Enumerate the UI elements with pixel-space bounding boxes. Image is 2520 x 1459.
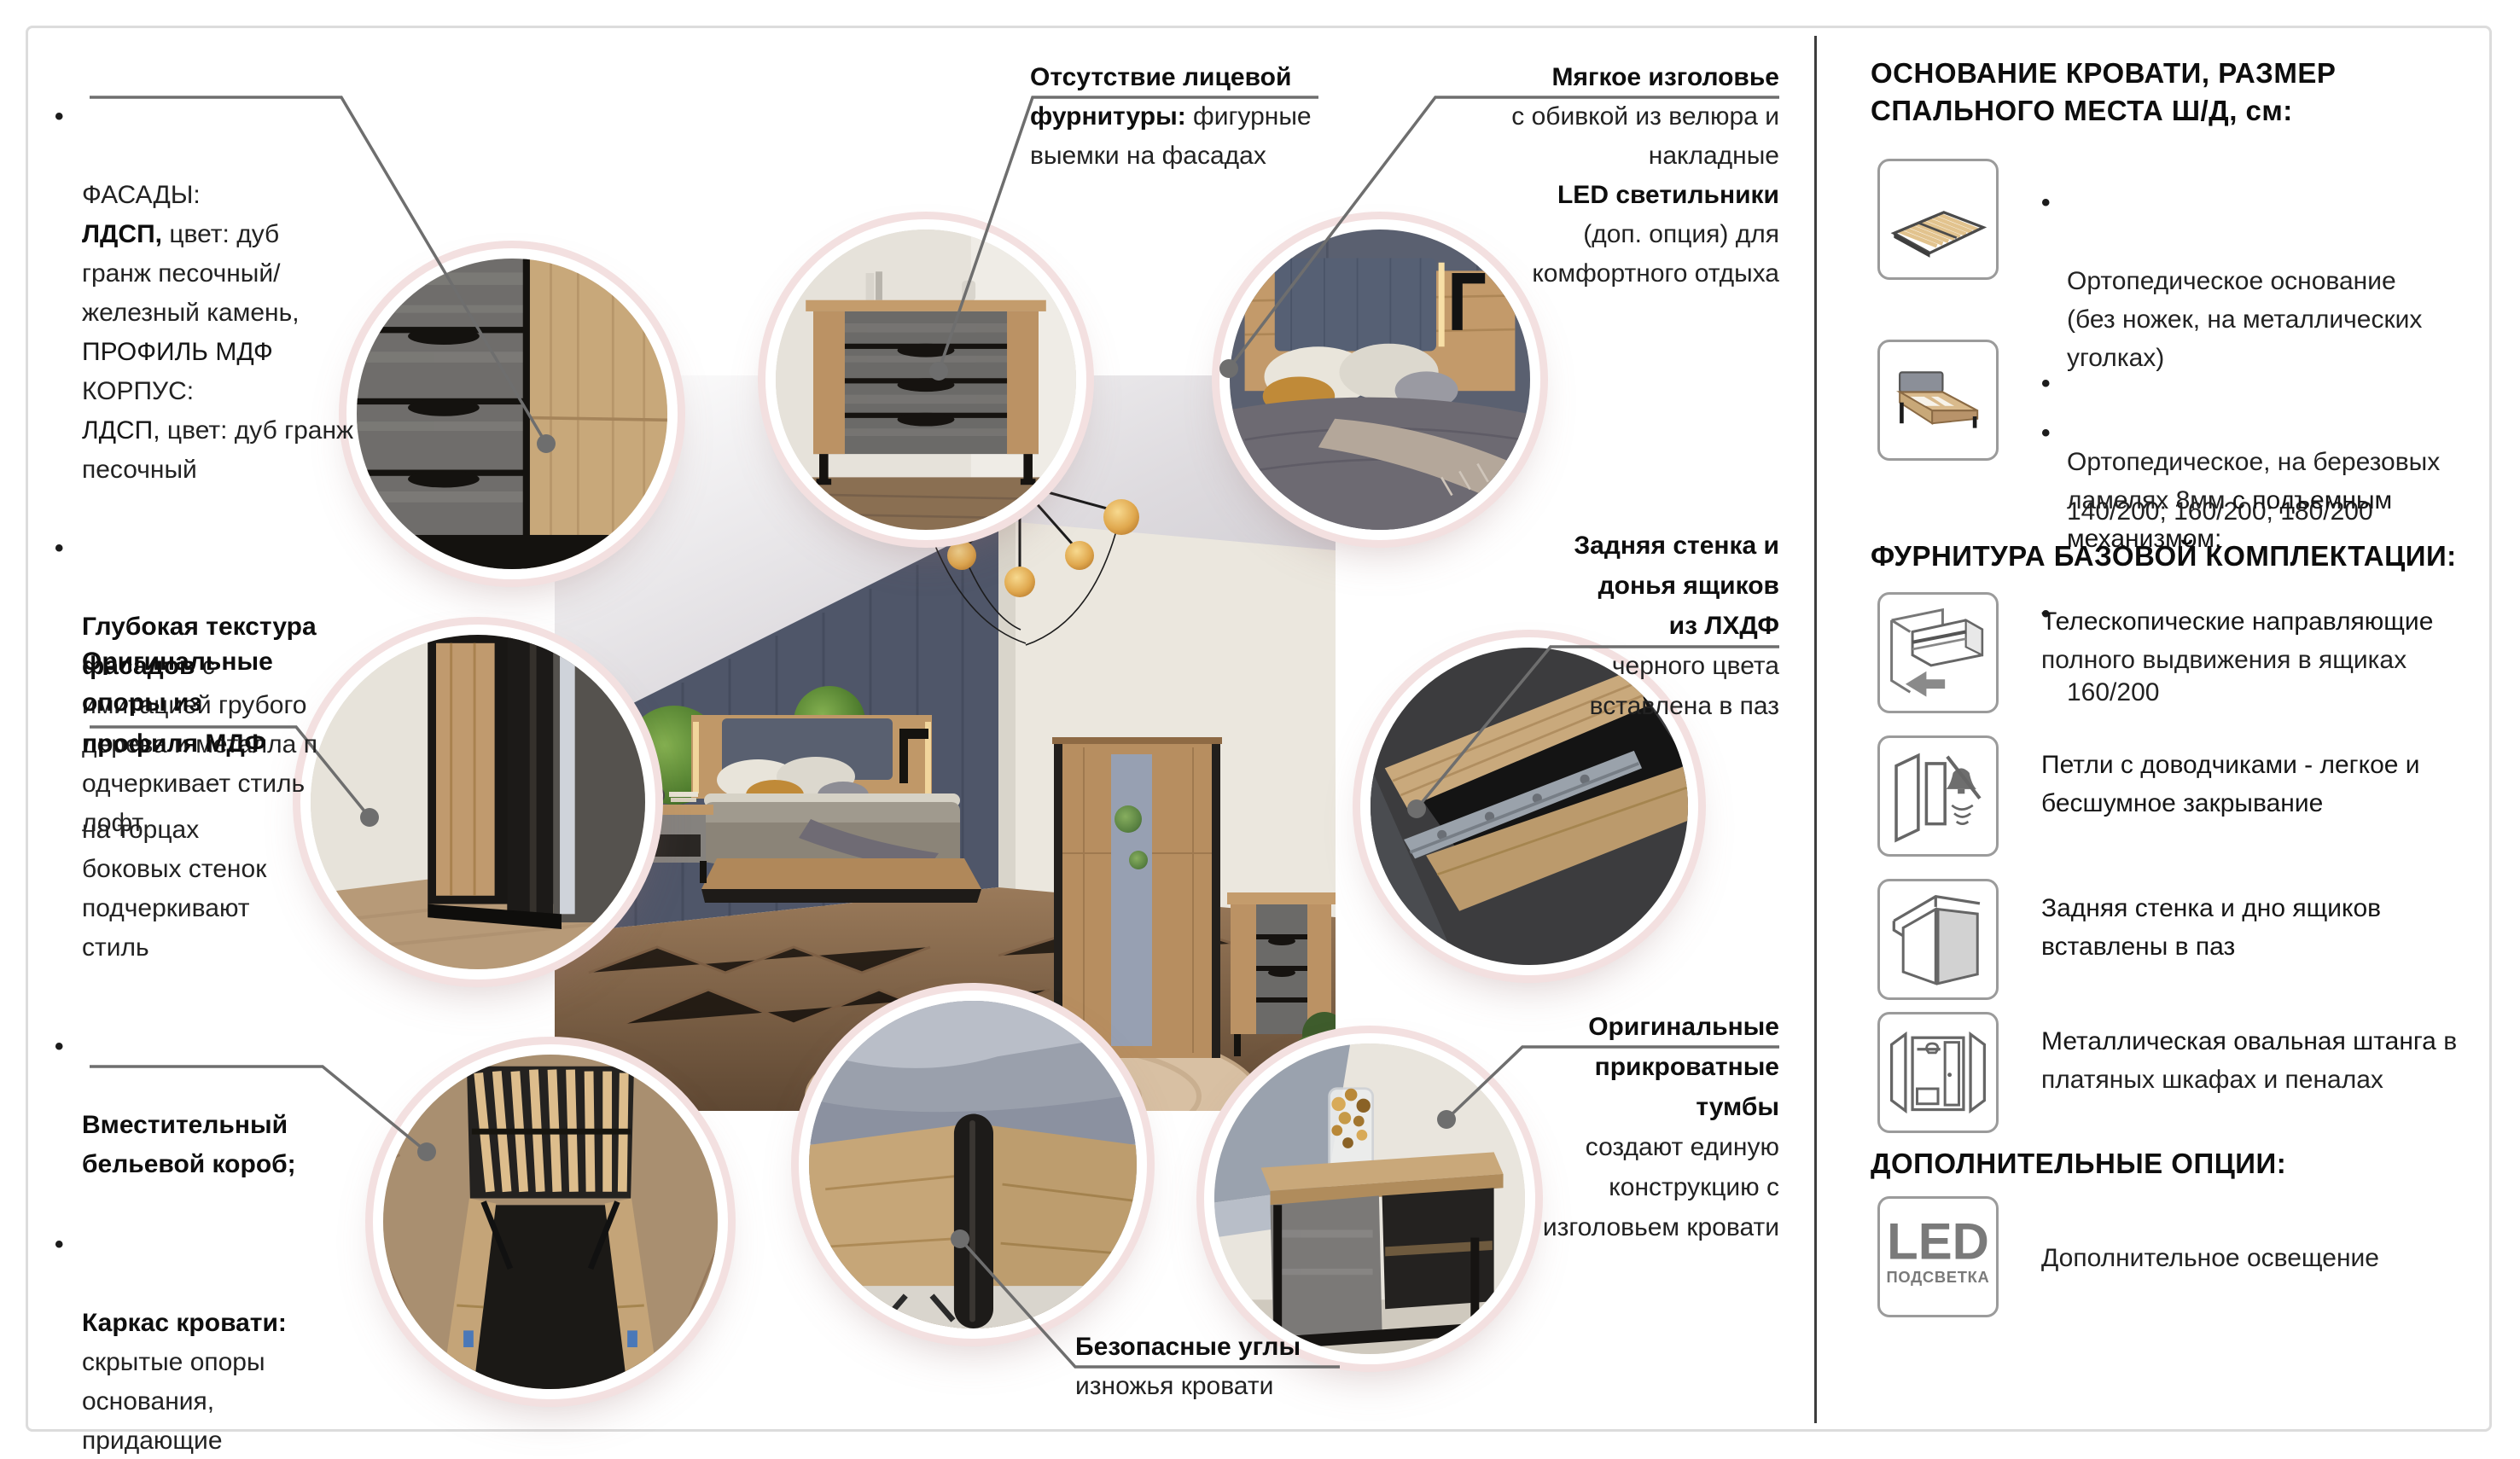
annotation-facades-item1: • ФАСАДЫ: ЛДСП, цвет: дуб гранж песочный…: [53, 97, 373, 490]
sidebar-heading-base: ОСНОВАНИЕ КРОВАТИ, РАЗМЕР СПАЛЬНОГО МЕСТ…: [1871, 55, 2468, 130]
callout-photo-storage-box: [383, 1055, 718, 1389]
sidebar-hw-row1-text: Телескопические направляющие полного выд…: [2041, 602, 2494, 679]
sidebar-hw-row2-text: Петли с доводчиками - легкое и бесшумное…: [2041, 746, 2494, 823]
annotation-box-item1: • Вместительный бельевой короб;: [53, 1027, 373, 1184]
sidebar-base-row2-line2: 160/200: [2067, 678, 2159, 706]
callout-photo-dresser-no-handles: [776, 230, 1076, 530]
callout-photo-nightstand: [1214, 1043, 1525, 1354]
led-backlight-icon: LED ПОДСВЕТКА: [1877, 1196, 1999, 1317]
annotation-box-item2: • Каркас кровати: скрытые опоры основани…: [53, 1225, 373, 1459]
annotation-nightstands: Оригинальные прикроватные тумбы создают …: [1489, 1007, 1779, 1247]
callout-photo-safe-corner: [809, 1001, 1137, 1328]
annotation-safe-corners: Безопасные углы изножья кровати: [1075, 1328, 1357, 1406]
annotation-box-text2: Каркас кровати: скрытые опоры основания,…: [82, 1309, 287, 1459]
annotation-supports-body: на торцах боковых стенок подчеркивают ст…: [82, 811, 389, 968]
annotation-storage-box: • Вместительный бельевой короб; • Каркас…: [53, 988, 373, 1459]
bed-lift-icon: [1877, 340, 1999, 461]
sidebar-hw-row3-text: Задняя стенка и дно ящиков вставлены в п…: [2041, 889, 2494, 966]
bullet-glyph: •: [2041, 364, 2051, 403]
annotation-no-fittings: Отсутствие лицевой фурнитуры: фигурные в…: [1030, 58, 1346, 176]
nightstand-image: [1214, 1043, 1525, 1354]
annotation-headboard: Мягкое изголовье с обивкой из велюра и н…: [1446, 58, 1779, 294]
sidebar-led-row-text: Дополнительное освещение: [2041, 1239, 2494, 1277]
sidebar-heading-options: ДОПОЛНИТЕЛЬНЫЕ ОПЦИИ:: [1871, 1145, 2468, 1183]
sidebar-hw-row4-text: Металлическая овальная штанга в платяных…: [2041, 1022, 2494, 1099]
bullet-glyph: •: [55, 529, 64, 568]
slat-base-icon: [1877, 159, 1999, 280]
sidebar-heading-hardware: ФУРНИТУРА БАЗОВОЙ КОМПЛЕКТАЦИИ:: [1871, 538, 2468, 575]
sidebar-base-row2-bullet1: • Ортопедическое, на березовых ламелях 8…: [2041, 366, 2494, 558]
drawer-slides-icon: [1877, 592, 1999, 713]
safe-corner-image: [809, 1001, 1137, 1328]
callout-photo-facade-texture: [357, 259, 667, 569]
bullet-glyph: •: [55, 1027, 64, 1067]
annotation-back-panel: Задняя стенка и донья ящиков из ЛХДФ чер…: [1489, 526, 1779, 726]
annotation-box-text1: Вместительный бельевой короб;: [82, 1111, 296, 1178]
annotation-supports: Оригинальные опоры из профиля МДФ на тор…: [82, 602, 389, 1007]
bullet-glyph: •: [55, 1225, 64, 1264]
hinge-soft-close-icon: [1877, 735, 1999, 857]
bullet-glyph: •: [2041, 183, 2051, 222]
back-panel-groove-icon: [1877, 879, 1999, 1000]
annotation-facades-text1: ФАСАДЫ: ЛДСП, цвет: дуб гранж песочный/ …: [82, 181, 353, 484]
wardrobe-rail-icon: [1877, 1012, 1999, 1133]
dresser-image: [776, 230, 1076, 530]
facade-texture-image: [357, 259, 667, 569]
infographic-page: • ФАСАДЫ: ЛДСП, цвет: дуб гранж песочный…: [0, 0, 2520, 1459]
led-icon-text: LED: [1887, 1213, 1989, 1270]
bullet-glyph: •: [55, 97, 64, 137]
storage-box-image: [383, 1055, 718, 1389]
led-icon-subtext: ПОДСВЕТКА: [1887, 1268, 1990, 1286]
sidebar-divider: [1814, 36, 1817, 1423]
annotation-supports-title: Оригинальные опоры из профиля МДФ: [82, 642, 389, 764]
